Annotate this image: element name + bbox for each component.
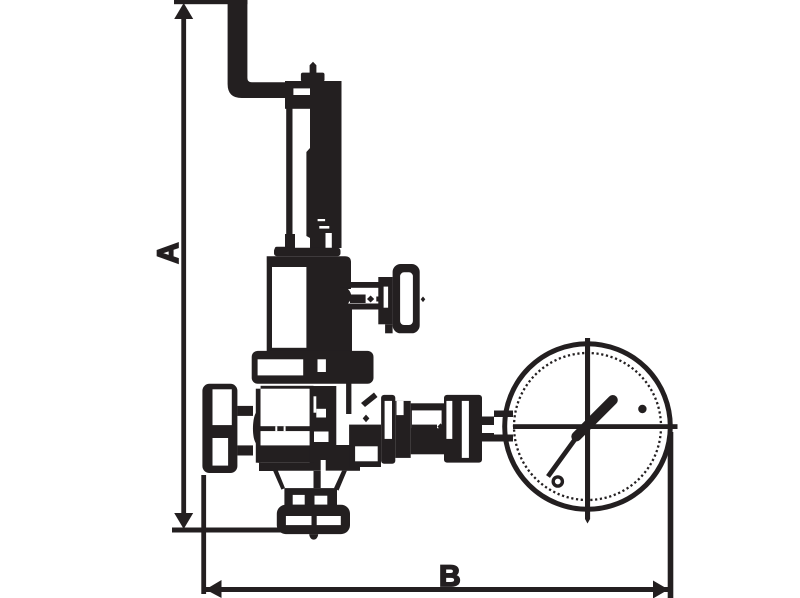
svg-text:A: A: [152, 242, 185, 263]
svg-text:B: B: [439, 560, 461, 593]
